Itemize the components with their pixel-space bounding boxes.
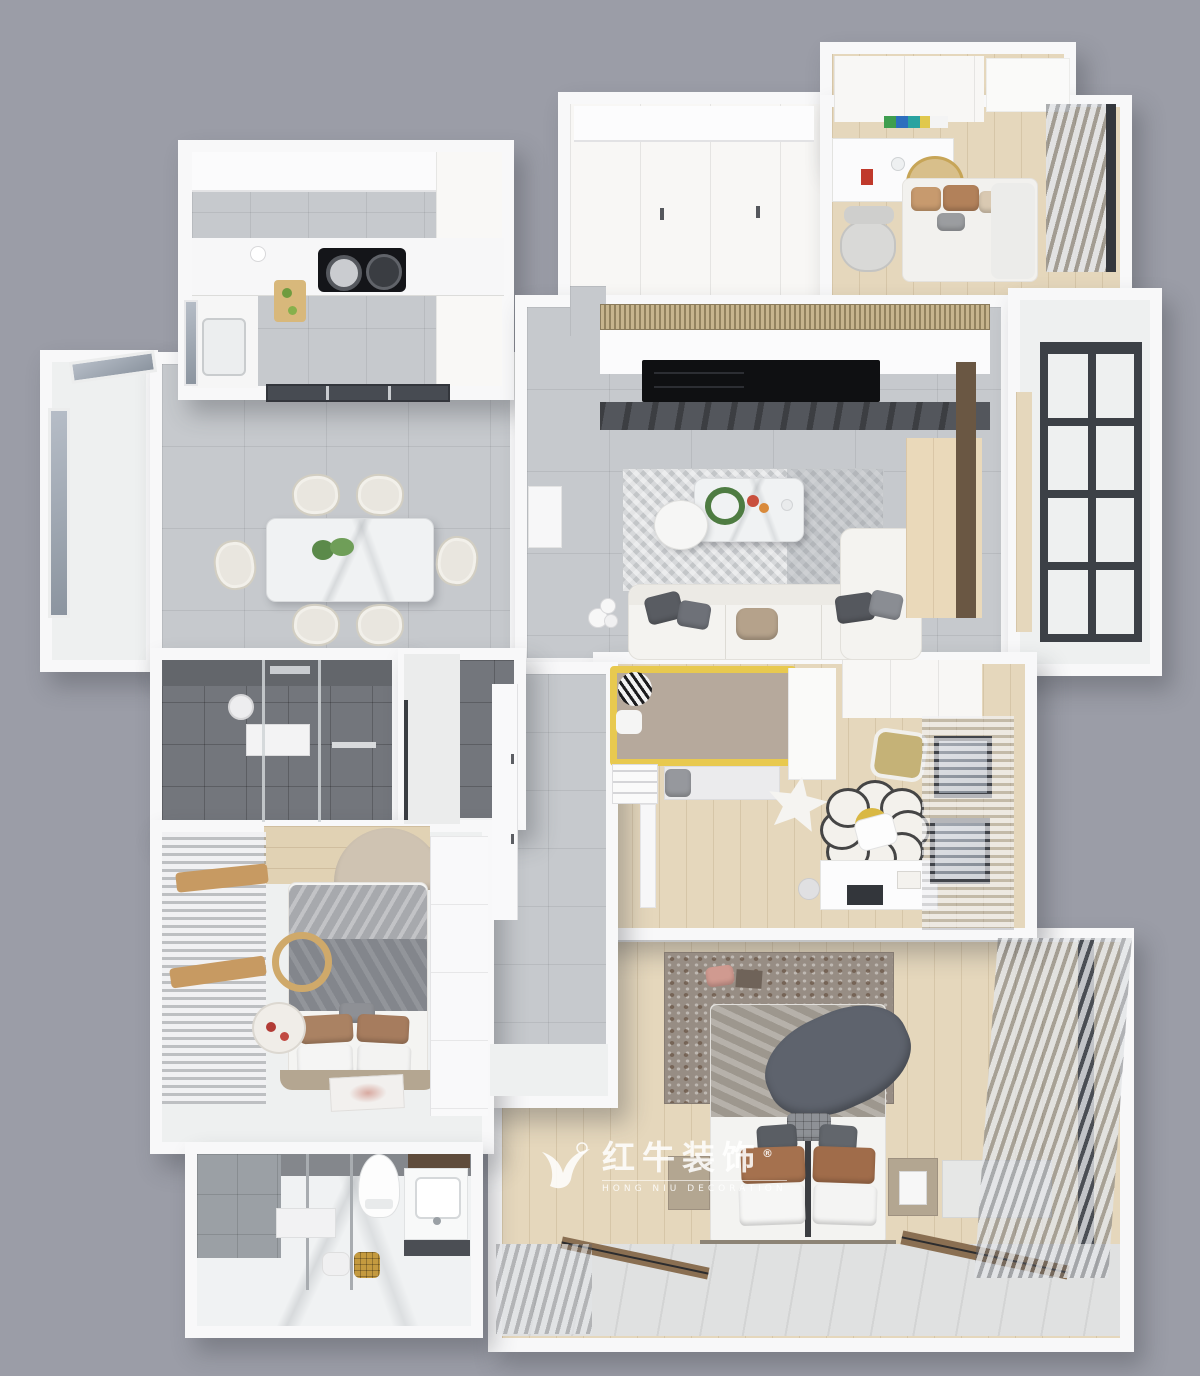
table-wreath-plant [705,487,745,525]
towel-bar [332,742,376,748]
foot-rug [329,1074,405,1112]
kids-sheer-curtain [922,716,1014,930]
coffee-table [694,478,804,542]
pink-pillow [705,964,736,988]
gold-ring-decor [272,932,332,992]
cooktop-pot [326,255,362,291]
desk-notebook [897,871,921,889]
anteroom-white-wall [404,654,460,824]
kids-pillar [640,804,656,908]
bath-glass-door [404,700,408,820]
kids-desk [820,860,938,910]
office-chair-seat [840,220,896,272]
mbath-tile-wall [197,1154,281,1258]
lamp-globe [600,598,616,614]
watermark-text: 红牛装饰® HONG NIU DECORATION [602,1141,787,1194]
shower-fixture [270,666,310,674]
pillow [911,187,941,211]
shower-glass-panel [318,660,321,822]
sofa-seam [821,605,822,659]
console-shelf [654,386,744,388]
laptop [847,885,883,905]
kitchen-sink [202,318,246,376]
bedroom2-round-chair [252,1002,306,1054]
desk-red-box [861,169,873,185]
console-shelf [654,372,744,374]
kitchen-cooktop [318,248,406,292]
tv-wall-wood-slats [600,304,990,330]
mbath-shelf [276,1208,336,1238]
red-cushion [266,1022,276,1032]
vanity-dark-counter [404,1240,470,1256]
hallway-cabinet [492,684,518,920]
mbath-glass-panel [350,1154,353,1290]
watermark: 红牛装饰® HONG NIU DECORATION [538,1140,787,1194]
art-frame [899,1171,927,1205]
watermark-brand-en: HONG NIU DECORATION [602,1180,787,1194]
sofa-pillow [676,599,712,630]
dining-table-plant [312,538,356,564]
zebra-pillow [618,672,652,706]
kids-stool [798,878,820,900]
master-bed [710,1004,886,1244]
vegetable [282,288,292,298]
hongniu-bull-logo-icon [538,1140,592,1194]
side-table [654,500,708,550]
master-curtain [974,938,1132,1278]
bath-ceiling-lamp [228,694,254,720]
faucet [433,1217,441,1225]
cabinet-handle [511,754,514,764]
study-window-curtain [1046,104,1116,272]
wardrobe-handle [660,208,664,220]
sofa-seam [725,605,726,659]
kids-lounge-chair [869,726,929,783]
kids-lower-bedding [664,766,780,800]
study-window-frame [1106,104,1116,272]
registered-mark: ® [762,1147,773,1160]
living-side-cabinet [528,486,562,548]
duvet [991,183,1035,279]
storage-box [735,969,762,989]
tv-media-console [642,360,880,402]
storage-basket [354,1252,380,1278]
pillow [812,1184,877,1226]
toilet [358,1154,400,1218]
toilet-tank [365,1199,393,1209]
watermark-brand-cn: 红牛装饰® [602,1141,787,1174]
office-chair [836,206,900,272]
sink-basin [415,1177,461,1219]
pillow [937,213,965,231]
bedroom2-wardrobe [430,836,488,1116]
kids-bed-stairs [612,764,658,804]
pillow [665,769,691,797]
kids-shelf-column [788,668,836,780]
hallway-floor-transition [490,1044,608,1096]
floor-lamp [588,598,618,632]
fruit [747,495,759,507]
nightstand [888,1158,938,1216]
entry-top-shelf [574,106,814,142]
dining-chair [355,473,405,517]
tv-hearth-strip [600,402,990,430]
pillow [356,1014,409,1045]
ottoman [736,608,778,640]
kids-wardrobe [842,660,982,718]
pillow [298,1014,353,1045]
pillow [812,1146,875,1184]
office-chair-back [844,206,894,224]
kitchen-cutting-board [274,280,306,322]
floor-plan-render: 红牛装饰® HONG NIU DECORATION [0,0,1200,1376]
cooktop-burner [366,254,402,290]
balcony-wood-strip [1016,392,1032,632]
red-cushion [280,1032,289,1041]
kids-pillow [616,710,642,734]
bath-shelf [246,724,310,756]
vegetable [288,306,297,315]
table-dish [781,499,793,511]
vanity [404,1168,468,1240]
study-cabinets [834,56,984,122]
bath-stool [322,1252,350,1276]
vanity-upper-cabinet [408,1154,470,1168]
lamp-globe [604,614,618,628]
cabinet-handle [511,834,514,844]
shower-glass-panel [262,660,265,822]
study-bed [902,178,1038,282]
kitchen-glass-sliding-door [266,384,450,402]
balcony-window-grid [1040,342,1142,642]
balcony-window-left [48,408,70,618]
fruit [759,503,769,513]
plant-leaves [330,538,354,556]
kitchen-window [184,300,198,386]
master-balcony-blind [496,1244,592,1334]
desk-cup [891,157,905,171]
wardrobe-handle [756,206,760,218]
balcony-door-frame [956,362,976,618]
kitchen-dish [250,246,266,262]
bookshelf-books [884,116,948,128]
rug-print [349,1082,388,1104]
pillow [943,185,979,211]
